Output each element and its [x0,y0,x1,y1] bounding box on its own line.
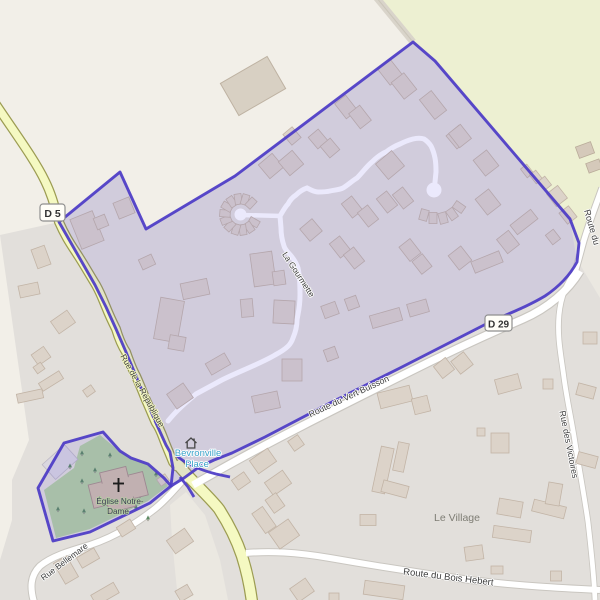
svg-text:D 5: D 5 [44,208,61,220]
svg-text:Le Village: Le Village [434,512,480,524]
svg-text:D 29: D 29 [488,320,510,331]
svg-text:Place: Place [185,459,209,470]
svg-text:Dame: Dame [107,507,129,516]
svg-text:Bevronville: Bevronville [175,448,221,459]
svg-text:Église Notre-: Église Notre- [96,496,144,506]
